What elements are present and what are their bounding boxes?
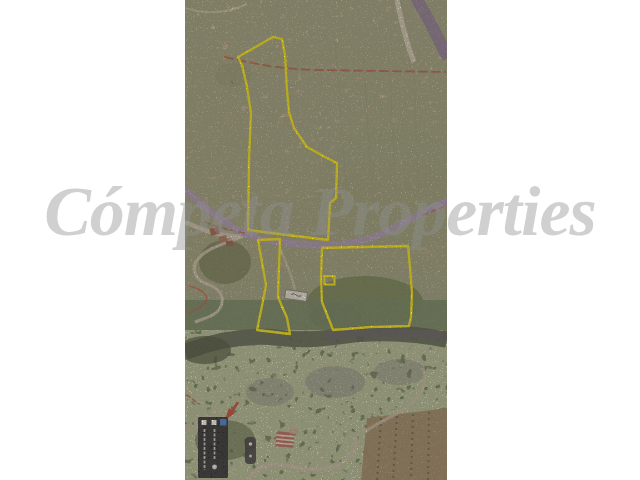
listing-image-page: Cómpeta Properties bbox=[0, 0, 640, 480]
photo-grain bbox=[185, 0, 447, 480]
aerial-photo-svg bbox=[185, 0, 447, 480]
aerial-photo bbox=[185, 0, 447, 480]
